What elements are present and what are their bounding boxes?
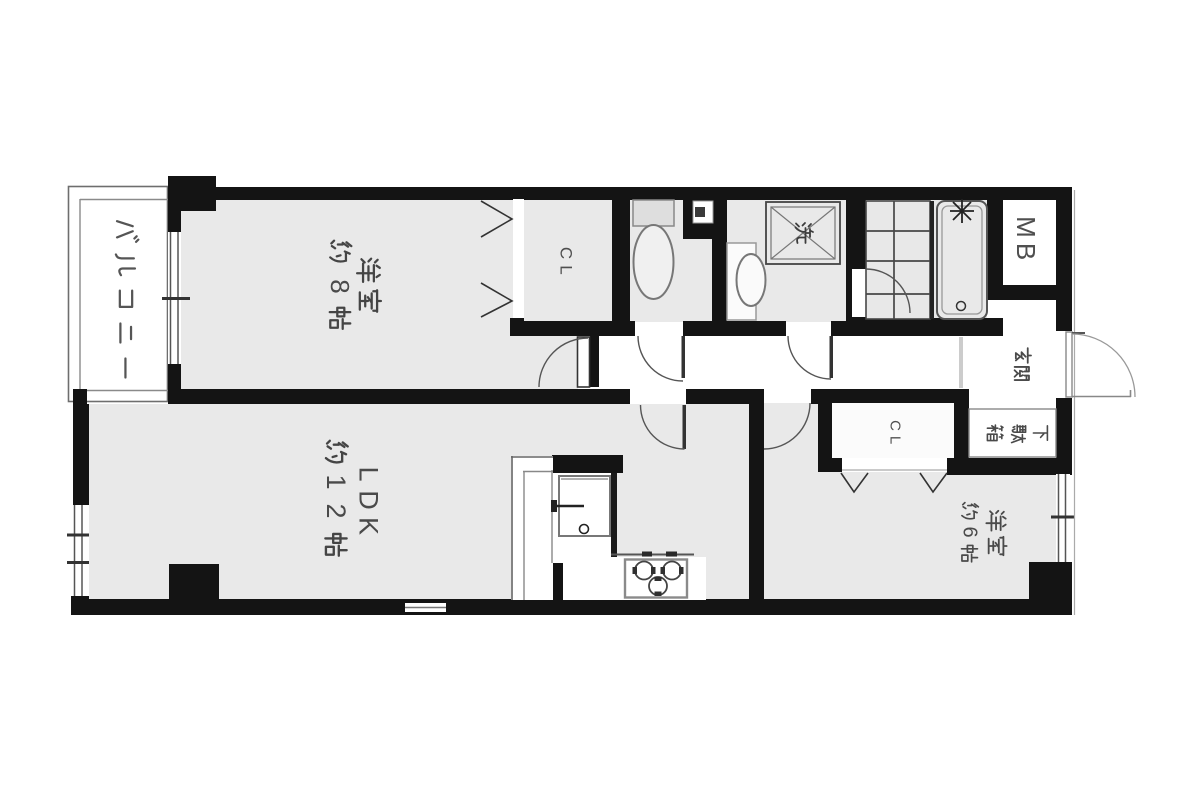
svg-text:L: L <box>354 466 384 481</box>
svg-text:C: C <box>887 420 904 431</box>
svg-text:1: 1 <box>321 474 351 489</box>
svg-text:D: D <box>354 490 384 510</box>
svg-text:L: L <box>887 436 904 444</box>
svg-text:8: 8 <box>325 279 355 293</box>
svg-text:C: C <box>557 247 576 259</box>
svg-text:L: L <box>557 265 576 274</box>
svg-text:M: M <box>1011 216 1041 238</box>
svg-text:K: K <box>354 517 384 535</box>
svg-text:6: 6 <box>959 526 981 537</box>
svg-text:2: 2 <box>321 503 351 518</box>
svg-text:B: B <box>1011 243 1041 260</box>
